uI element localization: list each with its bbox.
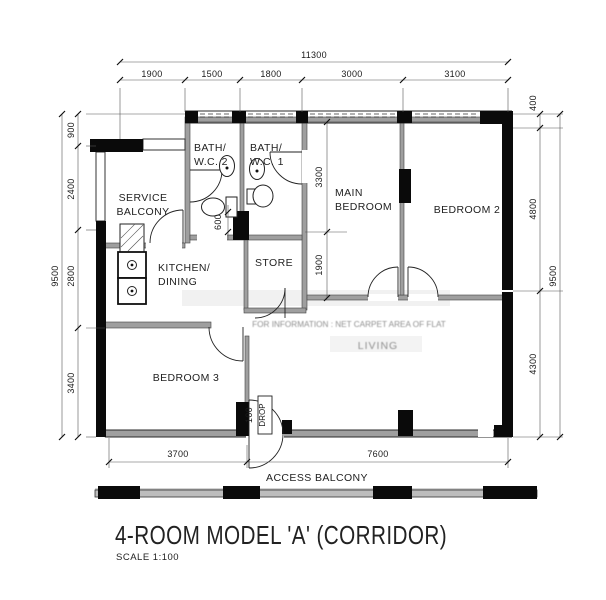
floor-plan-page: 11300 1900 1500 1800 3000 3100 9500 900 … — [0, 0, 606, 600]
room-label-service-balcony-2: BALCONY — [117, 206, 170, 218]
dim-interior-600: 600 — [213, 214, 223, 230]
dim-top-3: 1800 — [260, 69, 281, 79]
room-label-living: LIVING — [358, 340, 398, 352]
dim-right-overall: 9500 — [548, 265, 558, 286]
dim-left-overall: 9500 — [50, 265, 60, 286]
room-label-bath1-1: BATH/ — [250, 142, 282, 154]
drawing-title: 4-ROOM MODEL 'A' (CORRIDOR) — [115, 520, 447, 550]
dim-top-4: 3000 — [341, 69, 362, 79]
room-label-main-bedroom-2: BEDROOM — [335, 201, 392, 213]
room-label-service-balcony-1: SERVICE — [119, 192, 168, 204]
watermark-text: FOR INFORMATION : NET CARPET AREA OF FLA… — [252, 320, 446, 329]
room-label-main-bedroom-1: MAIN — [335, 187, 363, 199]
dim-bottom-2: 7600 — [367, 449, 388, 459]
dim-top-overall: 11300 — [301, 50, 327, 60]
room-label-bath2-1: BATH/ — [194, 142, 226, 154]
room-label-kitchen-2: DINING — [158, 276, 197, 288]
entrance-drop-label: DROP — [258, 403, 267, 426]
bath2-toilet — [202, 197, 238, 217]
dim-left-1: 900 — [66, 122, 76, 138]
kitchen-counter-hatch — [120, 224, 144, 252]
room-label-store: STORE — [255, 257, 293, 269]
dim-interior-3300: 3300 — [314, 166, 324, 187]
dim-top-1: 1900 — [141, 69, 162, 79]
door-bedroom-3 — [209, 327, 243, 361]
dim-left-2: 2400 — [66, 178, 76, 199]
dim-top-2: 1500 — [201, 69, 222, 79]
title-block: 4-ROOM MODEL 'A' (CORRIDOR) SCALE 1:100 — [115, 520, 447, 563]
scale-note: SCALE 1:100 — [116, 552, 179, 563]
dim-right-3: 4300 — [528, 353, 538, 374]
room-label-bedroom-3: BEDROOM 3 — [153, 372, 220, 384]
access-balcony-label: ACCESS BALCONY — [266, 472, 368, 484]
bath1-toilet — [247, 185, 273, 207]
dim-left-4: 3400 — [66, 372, 76, 393]
dim-top-5: 3100 — [444, 69, 465, 79]
dim-right-2: 4800 — [528, 198, 538, 219]
dim-entrance-100: 100 — [244, 407, 254, 423]
dim-right-1: 400 — [528, 95, 538, 111]
room-label-bedroom-2: BEDROOM 2 — [434, 204, 501, 216]
room-label-bath2-2: W.C. 2 — [194, 156, 228, 168]
dim-interior-1900: 1900 — [314, 254, 324, 275]
door-bath-wc2 — [190, 170, 222, 202]
kitchen-sink — [118, 252, 146, 304]
room-label-bath1-2: W.C. 1 — [250, 156, 284, 168]
dim-left-3: 2800 — [66, 265, 76, 286]
floor-plan-drawing: 11300 1900 1500 1800 3000 3100 9500 900 … — [0, 0, 606, 600]
room-label-kitchen-1: KITCHEN/ — [158, 262, 210, 274]
dim-bottom-1: 3700 — [167, 449, 188, 459]
